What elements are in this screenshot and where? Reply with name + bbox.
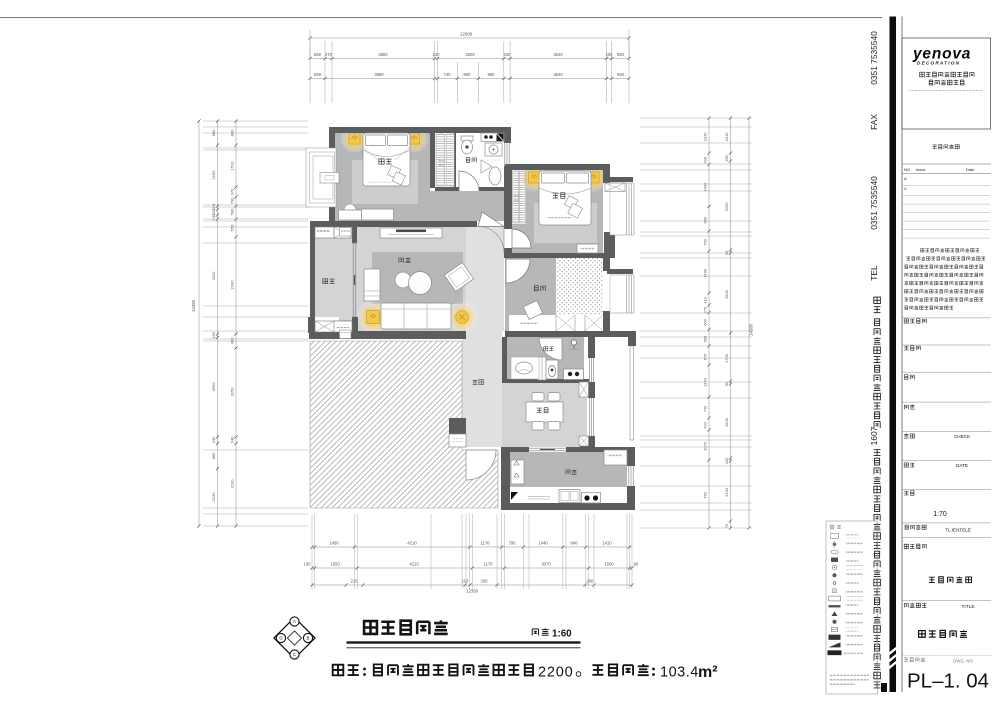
- svg-text:1070: 1070: [703, 441, 708, 450]
- svg-text:800: 800: [464, 72, 472, 77]
- svg-text:PL–1. 04: PL–1. 04: [907, 670, 989, 693]
- svg-text:330: 330: [481, 579, 489, 584]
- svg-text:NO.: NO.: [904, 167, 911, 172]
- svg-text:1550: 1550: [330, 562, 340, 567]
- svg-text:410: 410: [703, 296, 708, 303]
- svg-text:B: B: [307, 636, 310, 641]
- svg-text:1490: 1490: [703, 268, 708, 277]
- svg-text:650: 650: [617, 72, 625, 77]
- svg-text:3880: 3880: [374, 72, 384, 77]
- svg-text:1440: 1440: [538, 541, 548, 546]
- svg-text:1170: 1170: [483, 562, 493, 567]
- svg-text:0351 7535540: 0351 7535540: [869, 176, 879, 230]
- svg-text:1:60: 1:60: [552, 629, 572, 640]
- svg-text:A: A: [293, 619, 296, 624]
- svg-text:FAX: FAX: [869, 114, 879, 130]
- svg-text:3640: 3640: [553, 72, 563, 77]
- svg-text:2330: 2330: [230, 280, 235, 290]
- svg-text:550: 550: [230, 224, 235, 231]
- svg-text:569: 569: [314, 52, 322, 57]
- svg-text:3070: 3070: [541, 562, 551, 567]
- svg-text:2840: 2840: [724, 289, 729, 298]
- svg-text:4210: 4210: [407, 541, 417, 546]
- svg-text:120: 120: [724, 457, 729, 464]
- svg-text:110: 110: [462, 579, 469, 584]
- svg-text:569: 569: [314, 72, 322, 77]
- svg-text:0351 7535540: 0351 7535540: [869, 31, 879, 85]
- svg-text:790: 790: [230, 197, 235, 204]
- svg-text:2190: 2190: [211, 170, 216, 180]
- svg-text:2130: 2130: [724, 487, 729, 496]
- svg-text:880: 880: [211, 129, 216, 136]
- svg-text:270: 270: [325, 52, 333, 57]
- svg-text:500: 500: [230, 208, 235, 215]
- svg-text:490: 490: [230, 337, 235, 344]
- svg-text:420: 420: [703, 421, 708, 428]
- svg-text:TL.IENTELE: TL.IENTELE: [945, 528, 971, 533]
- svg-text:670: 670: [703, 353, 708, 360]
- svg-text:880: 880: [230, 129, 235, 136]
- svg-text:D: D: [279, 636, 282, 641]
- svg-text:14350: 14350: [191, 299, 196, 312]
- svg-text:m²: m²: [698, 664, 718, 681]
- svg-text:1240: 1240: [724, 132, 729, 141]
- svg-text:960: 960: [488, 72, 496, 77]
- svg-text:130: 130: [211, 331, 216, 338]
- svg-text:4210: 4210: [409, 562, 419, 567]
- svg-text:TEL: TEL: [869, 265, 879, 281]
- svg-text:3550: 3550: [211, 382, 216, 392]
- svg-text:860: 860: [703, 216, 708, 223]
- svg-text:1450: 1450: [329, 541, 339, 546]
- svg-text:CHECK: CHECK: [954, 434, 971, 439]
- svg-text:1170: 1170: [480, 541, 490, 546]
- svg-text:103.4: 103.4: [660, 665, 699, 681]
- svg-text:600: 600: [703, 318, 708, 325]
- svg-text:1:70: 1:70: [933, 511, 947, 518]
- svg-text:90: 90: [634, 562, 639, 567]
- svg-text:Issue: Issue: [916, 167, 926, 172]
- svg-text:370: 370: [230, 188, 235, 195]
- svg-text:2130: 2130: [211, 492, 216, 502]
- svg-text:240: 240: [230, 436, 235, 443]
- svg-text:DWG. NO: DWG. NO: [953, 659, 973, 664]
- svg-text:3640: 3640: [553, 52, 563, 57]
- svg-text:12350: 12350: [466, 589, 479, 594]
- svg-text:3150: 3150: [230, 387, 235, 397]
- svg-text:650: 650: [617, 52, 625, 57]
- svg-text:2640: 2640: [724, 417, 729, 426]
- svg-text:1607: 1607: [869, 426, 879, 445]
- svg-text:880: 880: [211, 452, 216, 459]
- svg-text:840: 840: [571, 541, 579, 546]
- svg-text:TITLE: TITLE: [961, 604, 974, 610]
- svg-text:1410: 1410: [602, 541, 612, 546]
- svg-text:3150: 3150: [724, 202, 729, 211]
- svg-text:700: 700: [703, 238, 708, 245]
- svg-text:740: 740: [703, 405, 708, 412]
- svg-text:270: 270: [703, 306, 708, 313]
- svg-text:1510: 1510: [230, 161, 235, 171]
- svg-text:A: A: [904, 176, 907, 181]
- svg-text:790: 790: [509, 541, 517, 546]
- svg-text:3880: 3880: [378, 52, 388, 57]
- svg-text:X:: X:: [904, 187, 907, 191]
- svg-text:450: 450: [703, 491, 708, 498]
- svg-text:DATE: DATE: [956, 463, 968, 468]
- svg-text:1500: 1500: [604, 562, 614, 567]
- svg-text:2130: 2130: [230, 479, 235, 489]
- svg-text:120: 120: [433, 52, 441, 57]
- svg-text:240: 240: [211, 436, 216, 443]
- svg-text:2200: 2200: [538, 665, 573, 681]
- svg-text:200: 200: [587, 579, 595, 584]
- svg-text:590: 590: [703, 335, 708, 342]
- svg-text:Date: Date: [966, 167, 975, 172]
- svg-text:2500: 2500: [465, 52, 475, 57]
- svg-text:740: 740: [444, 72, 452, 77]
- svg-text:1490: 1490: [703, 182, 708, 191]
- svg-text:C: C: [293, 652, 296, 657]
- svg-text:1240: 1240: [703, 132, 708, 141]
- svg-text:400: 400: [703, 156, 708, 163]
- svg-text:100: 100: [304, 562, 312, 567]
- svg-text:130: 130: [211, 213, 216, 220]
- svg-text:12009: 12009: [460, 32, 473, 37]
- svg-text:14280: 14280: [749, 323, 754, 336]
- svg-text:200: 200: [606, 52, 614, 57]
- svg-text:DECORATION: DECORATION: [917, 61, 960, 66]
- svg-text:4110: 4110: [211, 271, 216, 280]
- svg-text:290: 290: [724, 154, 729, 161]
